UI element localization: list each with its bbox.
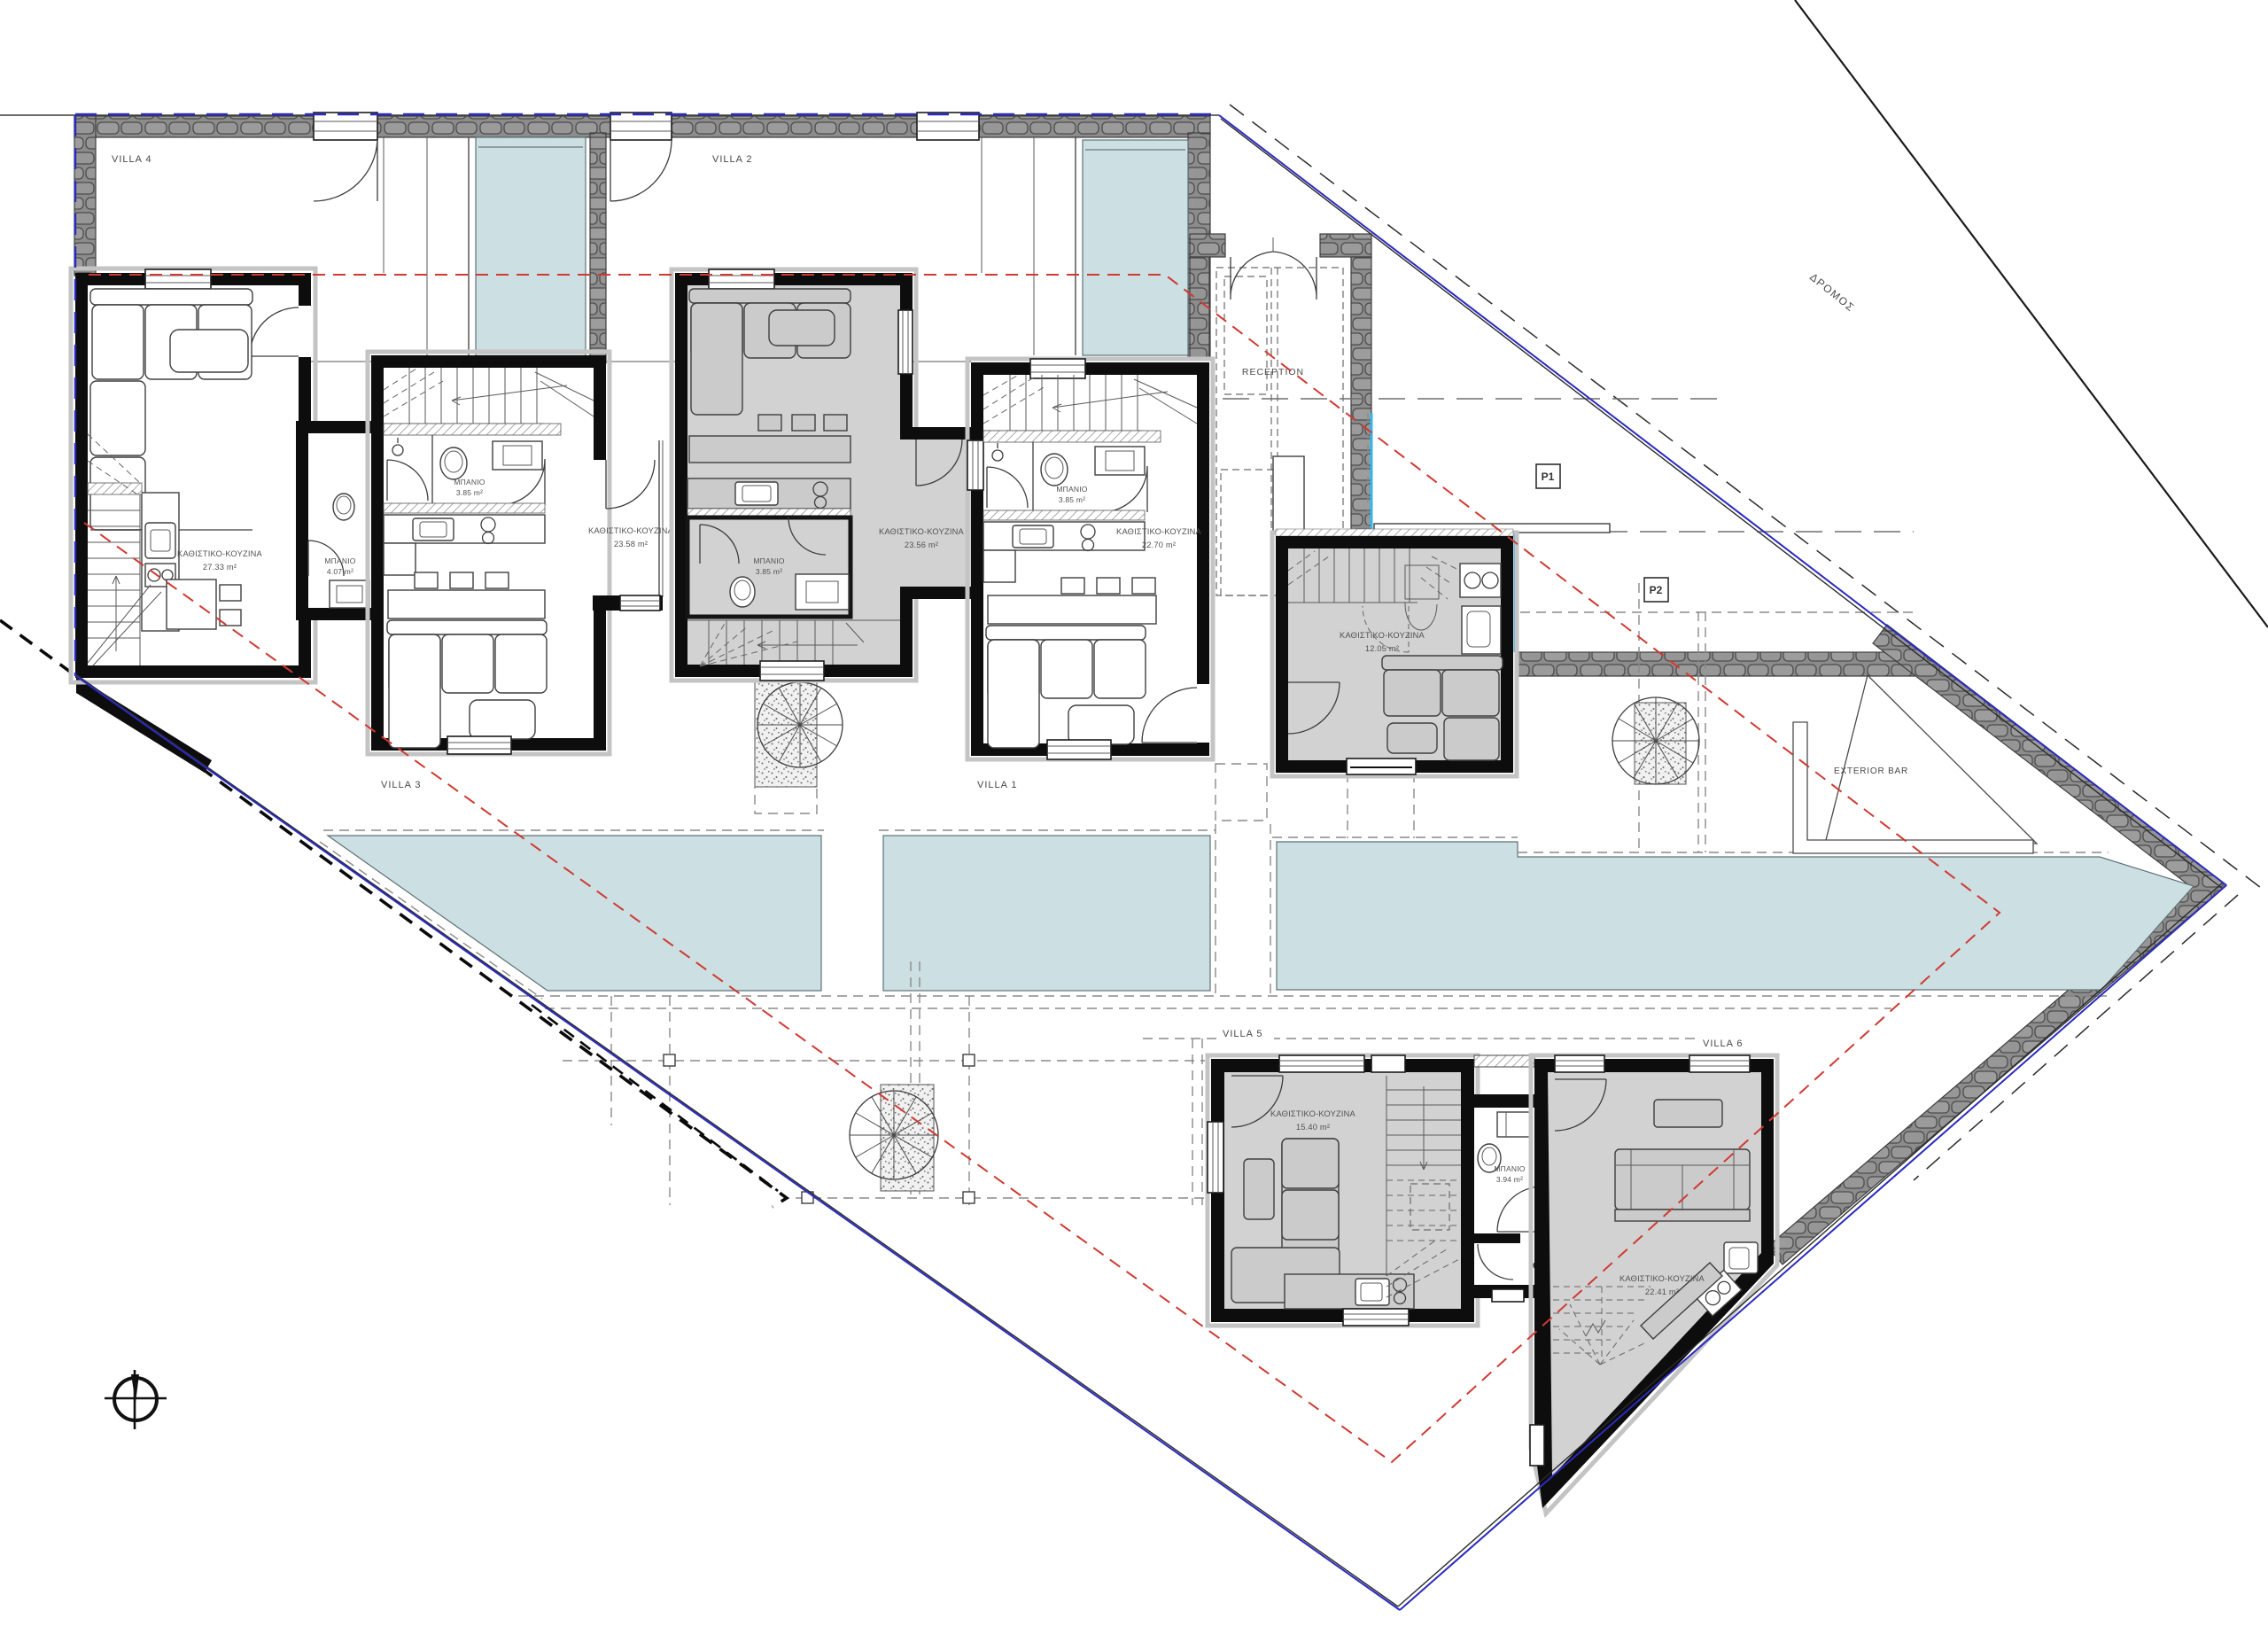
svg-text:VILLA 6: VILLA 6 bbox=[1703, 1039, 1744, 1049]
svg-text:VILLA 4: VILLA 4 bbox=[112, 154, 152, 165]
svg-text:VILLA 1: VILLA 1 bbox=[977, 780, 1018, 790]
svg-text:ΚΑΘΙΣΤΙΚΟ-ΚΟΥΖΙΝΑ: ΚΑΘΙΣΤΙΚΟ-ΚΟΥΖΙΝΑ bbox=[1340, 631, 1425, 640]
svg-text:3.85 m²: 3.85 m² bbox=[756, 567, 782, 576]
svg-text:22.70 m²: 22.70 m² bbox=[1142, 541, 1176, 549]
svg-text:ΜΠΑΝΙΟ: ΜΠΑΝΙΟ bbox=[1494, 1164, 1525, 1173]
svg-text:ΜΠΑΝΙΟ: ΜΠΑΝΙΟ bbox=[1056, 485, 1087, 494]
svg-text:ΚΑΘΙΣΤΙΚΟ-ΚΟΥΖΙΝΑ: ΚΑΘΙΣΤΙΚΟ-ΚΟΥΖΙΝΑ bbox=[1619, 1274, 1705, 1283]
svg-text:27.33 m²: 27.33 m² bbox=[203, 563, 237, 572]
svg-text:ΜΠΑΝΙΟ: ΜΠΑΝΙΟ bbox=[324, 556, 355, 565]
svg-text:ΚΑΘΙΣΤΙΚΟ-ΚΟΥΖΙΝΑ: ΚΑΘΙΣΤΙΚΟ-ΚΟΥΖΙΝΑ bbox=[588, 526, 673, 535]
svg-text:ΚΑΘΙΣΤΙΚΟ-ΚΟΥΖΙΝΑ: ΚΑΘΙΣΤΙΚΟ-ΚΟΥΖΙΝΑ bbox=[1116, 527, 1201, 536]
svg-text:VILLA 2: VILLA 2 bbox=[712, 154, 753, 165]
svg-text:23.58 m²: 23.58 m² bbox=[614, 540, 648, 548]
svg-text:3.94 m²: 3.94 m² bbox=[1496, 1175, 1523, 1184]
svg-text:P2: P2 bbox=[1650, 584, 1663, 596]
svg-text:ΜΠΑΝΙΟ: ΜΠΑΝΙΟ bbox=[753, 556, 784, 565]
svg-text:VILLA 5: VILLA 5 bbox=[1223, 1029, 1263, 1039]
svg-text:ΚΑΘΙΣΤΙΚΟ-ΚΟΥΖΙΝΑ: ΚΑΘΙΣΤΙΚΟ-ΚΟΥΖΙΝΑ bbox=[177, 549, 262, 558]
svg-text:VILLA 3: VILLA 3 bbox=[381, 780, 422, 790]
svg-text:P1: P1 bbox=[1542, 471, 1555, 483]
svg-text:3.85 m²: 3.85 m² bbox=[456, 488, 483, 497]
svg-text:4.07 m²: 4.07 m² bbox=[327, 567, 353, 576]
svg-text:ΚΑΘΙΣΤΙΚΟ-ΚΟΥΖΙΝΑ: ΚΑΘΙΣΤΙΚΟ-ΚΟΥΖΙΝΑ bbox=[1270, 1109, 1355, 1118]
svg-text:EXTERIOR BAR: EXTERIOR BAR bbox=[1834, 766, 1908, 776]
svg-text:ΜΠΑΝΙΟ: ΜΠΑΝΙΟ bbox=[454, 478, 485, 486]
svg-text:RECEPTION: RECEPTION bbox=[1242, 367, 1304, 377]
svg-text:22.41 m²: 22.41 m² bbox=[1645, 1288, 1679, 1296]
svg-text:23.56 m²: 23.56 m² bbox=[905, 541, 938, 549]
svg-text:3.85 m²: 3.85 m² bbox=[1059, 495, 1085, 504]
svg-text:12.05 m²: 12.05 m² bbox=[1365, 644, 1399, 653]
svg-text:15.40 m²: 15.40 m² bbox=[1296, 1123, 1330, 1132]
svg-text:ΚΑΘΙΣΤΙΚΟ-ΚΟΥΖΙΝΑ: ΚΑΘΙΣΤΙΚΟ-ΚΟΥΖΙΝΑ bbox=[879, 527, 964, 536]
